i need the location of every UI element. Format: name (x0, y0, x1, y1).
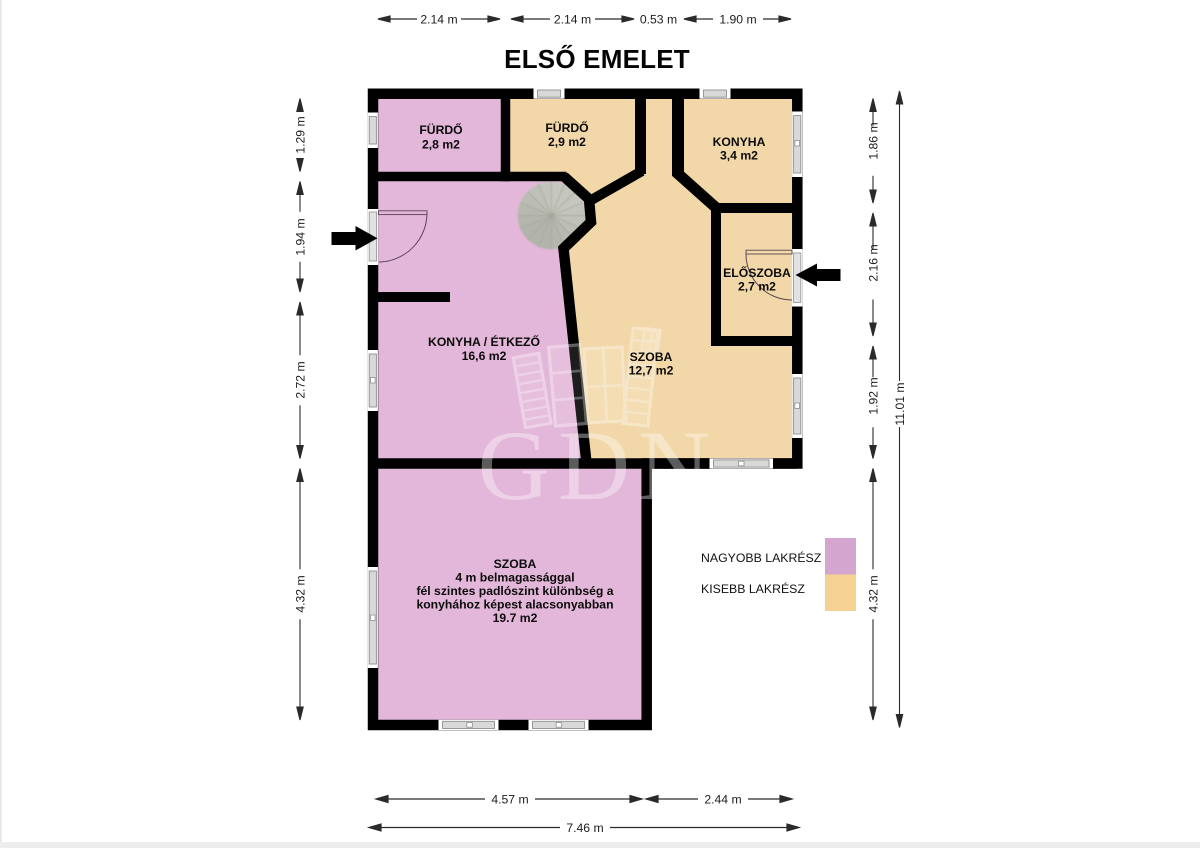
svg-text:1.29 m: 1.29 m (294, 116, 308, 153)
svg-text:2.14 m: 2.14 m (420, 13, 457, 27)
svg-text:4.57 m: 4.57 m (491, 793, 528, 807)
svg-text:1.86 m: 1.86 m (867, 122, 881, 159)
svg-text:4.32 m: 4.32 m (294, 575, 308, 612)
svg-text:1.92 m: 1.92 m (867, 377, 881, 414)
svg-text:2.72 m: 2.72 m (294, 361, 308, 398)
svg-text:4.32 m: 4.32 m (867, 575, 881, 612)
svg-text:KONYHA / ÉTKEZŐ: KONYHA / ÉTKEZŐ (428, 334, 540, 349)
svg-text:SZOBA: SZOBA (630, 350, 673, 364)
svg-text:ELSŐ EMELET: ELSŐ EMELET (504, 44, 690, 74)
svg-text:2.16 m: 2.16 m (867, 244, 881, 281)
svg-text:2,8 m2: 2,8 m2 (422, 138, 460, 152)
svg-text:19.7 m2: 19.7 m2 (493, 611, 538, 625)
svg-text:1.90 m: 1.90 m (719, 13, 756, 27)
svg-text:KONYHA: KONYHA (713, 135, 766, 149)
svg-text:FÜRDŐ: FÜRDŐ (545, 120, 588, 135)
svg-text:GDN: GDN (478, 410, 719, 521)
svg-text:0.53 m: 0.53 m (640, 13, 677, 27)
svg-text:11.01 m: 11.01 m (893, 382, 907, 425)
svg-text:FÜRDŐ: FÜRDŐ (419, 122, 462, 137)
svg-text:12,7 m2: 12,7 m2 (629, 364, 674, 378)
svg-text:4 m belmagassággal: 4 m belmagassággal (455, 571, 574, 585)
svg-text:2,7 m2: 2,7 m2 (738, 280, 776, 294)
svg-text:1.94 m: 1.94 m (294, 218, 308, 255)
svg-text:fél szintes padlószint különbs: fél szintes padlószint különbség a (416, 584, 613, 598)
svg-text:7.46 m: 7.46 m (566, 821, 603, 835)
svg-text:2.44 m: 2.44 m (704, 793, 741, 807)
svg-text:2.14 m: 2.14 m (554, 13, 591, 27)
svg-text:konyhához képest alacsonyabban: konyhához képest alacsonyabban (416, 598, 613, 612)
svg-text:16,6 m2: 16,6 m2 (462, 349, 507, 363)
svg-text:SZOBA: SZOBA (494, 557, 537, 571)
svg-text:2,9 m2: 2,9 m2 (548, 135, 586, 149)
svg-text:NAGYOBB LAKRÉSZ: NAGYOBB LAKRÉSZ (701, 550, 822, 565)
svg-text:3,4 m2: 3,4 m2 (720, 149, 758, 163)
svg-text:ELŐSZOBA: ELŐSZOBA (723, 265, 791, 280)
svg-text:KISEBB LAKRÉSZ: KISEBB LAKRÉSZ (701, 581, 805, 596)
